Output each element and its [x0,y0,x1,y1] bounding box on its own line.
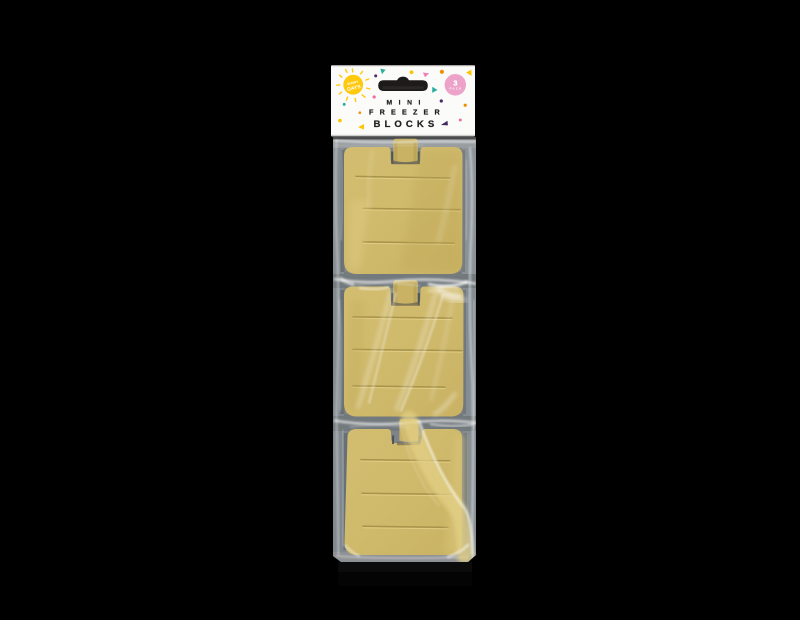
svg-text:BLOCKS: BLOCKS [374,119,439,130]
svg-text:PACK: PACK [449,87,462,91]
svg-text:3: 3 [453,78,457,87]
svg-text:FREEZER: FREEZER [369,108,446,117]
svg-text:MINI: MINI [387,100,428,107]
